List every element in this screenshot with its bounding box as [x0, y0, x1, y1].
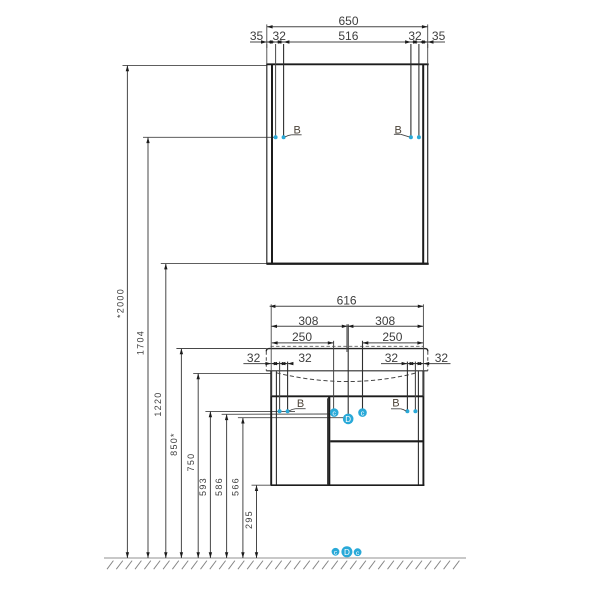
svg-text:32: 32: [298, 351, 312, 365]
svg-text:D: D: [344, 548, 350, 557]
svg-text:c: c: [361, 408, 365, 417]
svg-text:586: 586: [214, 477, 224, 496]
svg-text:650: 650: [338, 14, 358, 28]
svg-text:32: 32: [247, 351, 261, 365]
svg-text:B: B: [392, 398, 399, 410]
svg-text:250: 250: [382, 330, 402, 344]
svg-text:35: 35: [432, 29, 446, 43]
svg-text:35: 35: [250, 29, 264, 43]
svg-text:c: c: [356, 550, 360, 557]
svg-text:295: 295: [244, 510, 254, 529]
svg-text:308: 308: [298, 314, 318, 328]
svg-text:32: 32: [273, 29, 287, 43]
svg-text:250: 250: [292, 330, 312, 344]
svg-text:32: 32: [435, 351, 449, 365]
svg-text:*2000: *2000: [115, 288, 125, 318]
svg-text:850*: 850*: [169, 432, 179, 456]
svg-text:c: c: [332, 408, 336, 417]
svg-text:593: 593: [198, 477, 208, 496]
svg-text:516: 516: [338, 29, 358, 43]
svg-text:B: B: [297, 398, 304, 410]
svg-text:D: D: [345, 415, 351, 424]
svg-text:750: 750: [186, 453, 196, 472]
svg-text:1704: 1704: [136, 330, 146, 355]
svg-text:32: 32: [385, 351, 399, 365]
svg-text:c: c: [334, 549, 338, 556]
svg-text:566: 566: [231, 477, 241, 496]
svg-text:1220: 1220: [153, 391, 163, 416]
svg-text:616: 616: [337, 293, 357, 307]
svg-text:308: 308: [375, 314, 395, 328]
svg-text:32: 32: [408, 29, 422, 43]
